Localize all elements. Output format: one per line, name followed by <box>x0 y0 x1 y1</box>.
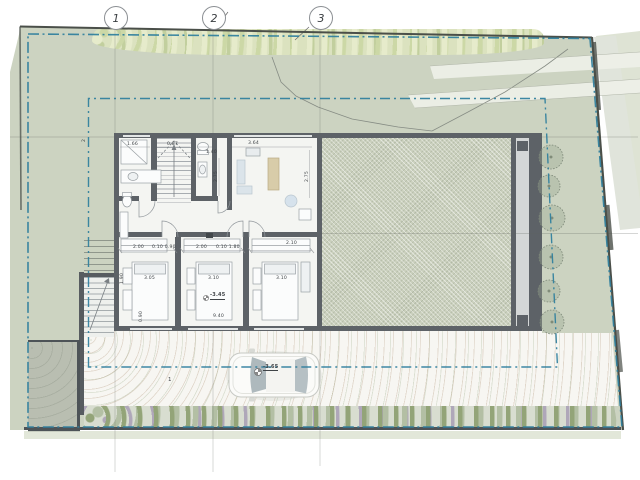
dim-chain-4: 0.10 1.80 <box>216 245 240 250</box>
dim-chain-1: 2.00 <box>133 245 144 250</box>
dim-bath-width: 1.66 <box>127 142 138 147</box>
dim-chain-3: 2.00 <box>196 245 207 250</box>
dim-bed2-width: 3.10 <box>208 276 219 281</box>
grid-label-3: 3 <box>318 12 325 25</box>
dim-bed1-width: 3.05 <box>144 276 155 281</box>
site-plan-canvas: 1.66 0.87 1.40 2.75 3.64 2.75 2.00 0.10 … <box>0 0 640 480</box>
dim-total: 9.40 <box>213 314 224 319</box>
grid-label-2: 2 <box>211 12 218 25</box>
grid-bubble-3: 3 <box>309 6 333 30</box>
dim-living-width: 3.64 <box>248 141 259 146</box>
parking-stall-number: 1 <box>168 378 172 383</box>
grid-tick-3 <box>295 27 309 40</box>
dim-bed1-side: 1.90 <box>120 273 125 284</box>
dim-stair-width: 0.87 <box>167 142 178 147</box>
dim-living-depth: 2.75 <box>305 171 310 182</box>
terrain-paths <box>272 49 640 131</box>
car <box>226 349 322 402</box>
level-driveway: -3.65 <box>263 365 278 372</box>
door-swings <box>139 201 265 237</box>
grid-bubble-1: 1 <box>104 6 128 30</box>
grid-label-1: 1 <box>113 12 120 25</box>
dimension-lines <box>118 147 314 253</box>
level-bedroom: -3.45 <box>210 293 225 300</box>
dim-wc-width: 1.40 <box>206 150 217 155</box>
linework-overlay <box>0 0 640 480</box>
boundary-point-number: 2 <box>82 139 87 142</box>
dim-chain-2: 0.10 0.90 <box>152 245 176 250</box>
dim-wc-depth: 2.75 <box>214 171 219 182</box>
grid-bubble-2: 2 <box>202 6 226 30</box>
dim-chain-5: 2.10 <box>286 241 297 246</box>
dim-bed3-width: 3.10 <box>276 276 287 281</box>
dim-bed1-door: 0.90 <box>139 311 144 322</box>
